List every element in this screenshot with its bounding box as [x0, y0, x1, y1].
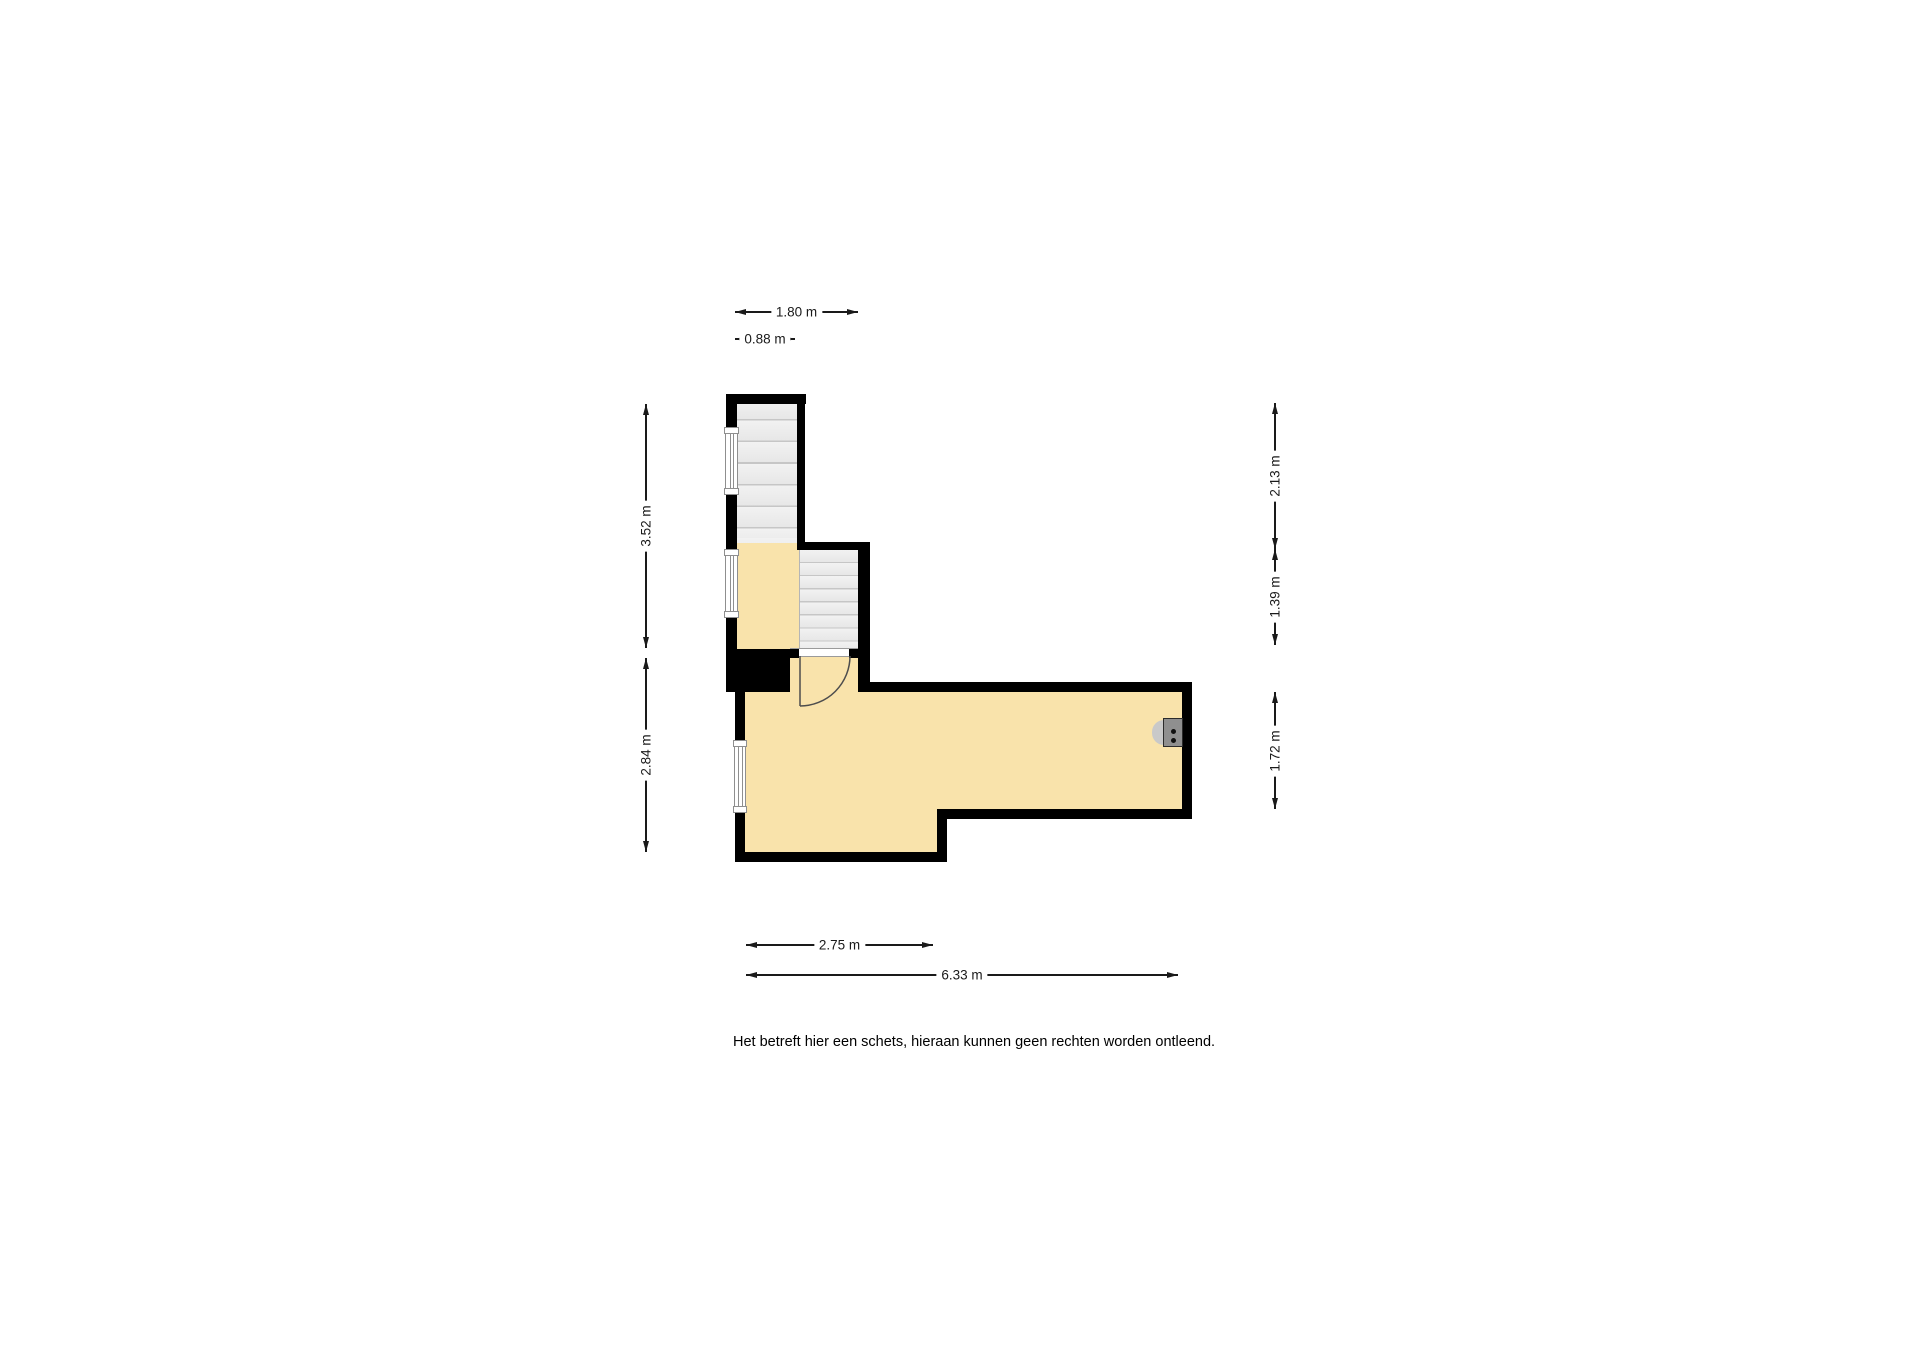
arrow-left-icon — [746, 942, 757, 948]
window-cap — [733, 740, 747, 747]
dimension-right-middle-height: 1.39 m — [1266, 549, 1284, 645]
arrow-down-icon — [1272, 538, 1278, 549]
window-cap — [724, 549, 739, 556]
window-cap — [724, 427, 739, 434]
window-cap — [724, 611, 739, 618]
arrow-down-icon — [643, 841, 649, 852]
staircase-main-icon — [737, 404, 797, 543]
door-swing-icon — [745, 645, 875, 720]
window-pane-line — [730, 431, 731, 491]
dimension-label: 1.72 m — [1266, 725, 1284, 776]
floor-stair-landing — [737, 543, 800, 649]
wall-stairwell-right — [797, 404, 805, 550]
window-cap — [724, 488, 739, 495]
disclaimer-text: Het betreft hier een schets, hieraan kun… — [733, 1034, 1215, 1050]
arrow-up-icon — [1272, 549, 1278, 560]
arrow-right-icon — [922, 942, 933, 948]
dimension-label: 1.39 m — [1266, 571, 1284, 622]
arrow-left-icon — [735, 309, 746, 315]
window-icon-left-middle — [725, 552, 738, 615]
window-pane-line — [733, 431, 734, 491]
wall-top — [726, 394, 806, 404]
window-icon-left-lower — [734, 743, 746, 810]
wall-living-bottom-left — [735, 852, 947, 862]
arrow-up-icon — [643, 404, 649, 415]
dimension-bottom-total-width: 6.33 m — [746, 966, 1178, 984]
dimension-label: 0.88 m — [739, 330, 790, 348]
window-pane-line — [738, 744, 739, 809]
arrow-up-icon — [1272, 403, 1278, 414]
dimension-label: 2.13 m — [1266, 450, 1284, 501]
window-pane-line — [730, 553, 731, 614]
dimension-label: 6.33 m — [936, 966, 987, 984]
staircase-attic-icon — [799, 550, 858, 648]
boiler-dot — [1171, 729, 1176, 734]
arrow-down-icon — [1272, 798, 1278, 809]
boiler-dot — [1171, 738, 1176, 743]
wall-attic-stairs-top — [797, 542, 870, 550]
wall-living-bottom-right — [937, 809, 1192, 819]
arrow-right-icon — [1167, 972, 1178, 978]
window-cap — [733, 806, 747, 813]
arrow-up-icon — [1272, 692, 1278, 703]
arrow-up-icon — [643, 658, 649, 669]
window-pane-line — [742, 744, 743, 809]
dimension-bottom-inner-width: 2.75 m — [746, 936, 933, 954]
dimension-right-upper-height: 2.13 m — [1266, 403, 1284, 549]
dimension-label: 1.80 m — [771, 303, 822, 321]
arrow-down-icon — [643, 637, 649, 648]
arrow-down-icon — [1272, 634, 1278, 645]
dimension-stair-width: 0.88 m — [735, 330, 795, 348]
dimension-label: 3.52 m — [637, 500, 655, 551]
boiler-icon — [1163, 718, 1183, 747]
wall-living-right — [1182, 692, 1192, 819]
window-icon-left-upper — [725, 430, 738, 492]
wall-living-top — [858, 682, 1192, 692]
dimension-label: 2.75 m — [814, 936, 865, 954]
dimension-left-lower-height: 2.84 m — [637, 658, 655, 852]
dimension-label: 2.84 m — [637, 729, 655, 780]
arrow-left-icon — [746, 972, 757, 978]
dimension-right-lower-height: 1.72 m — [1266, 692, 1284, 809]
dimension-left-upper-height: 3.52 m — [637, 404, 655, 648]
floorplan-canvas: 1.80 m 0.88 m 3.52 m 2.84 m 2.13 m 1.39 … — [0, 0, 1920, 1358]
window-pane-line — [733, 553, 734, 614]
arrow-right-icon — [847, 309, 858, 315]
dimension-top-width: 1.80 m — [735, 303, 858, 321]
